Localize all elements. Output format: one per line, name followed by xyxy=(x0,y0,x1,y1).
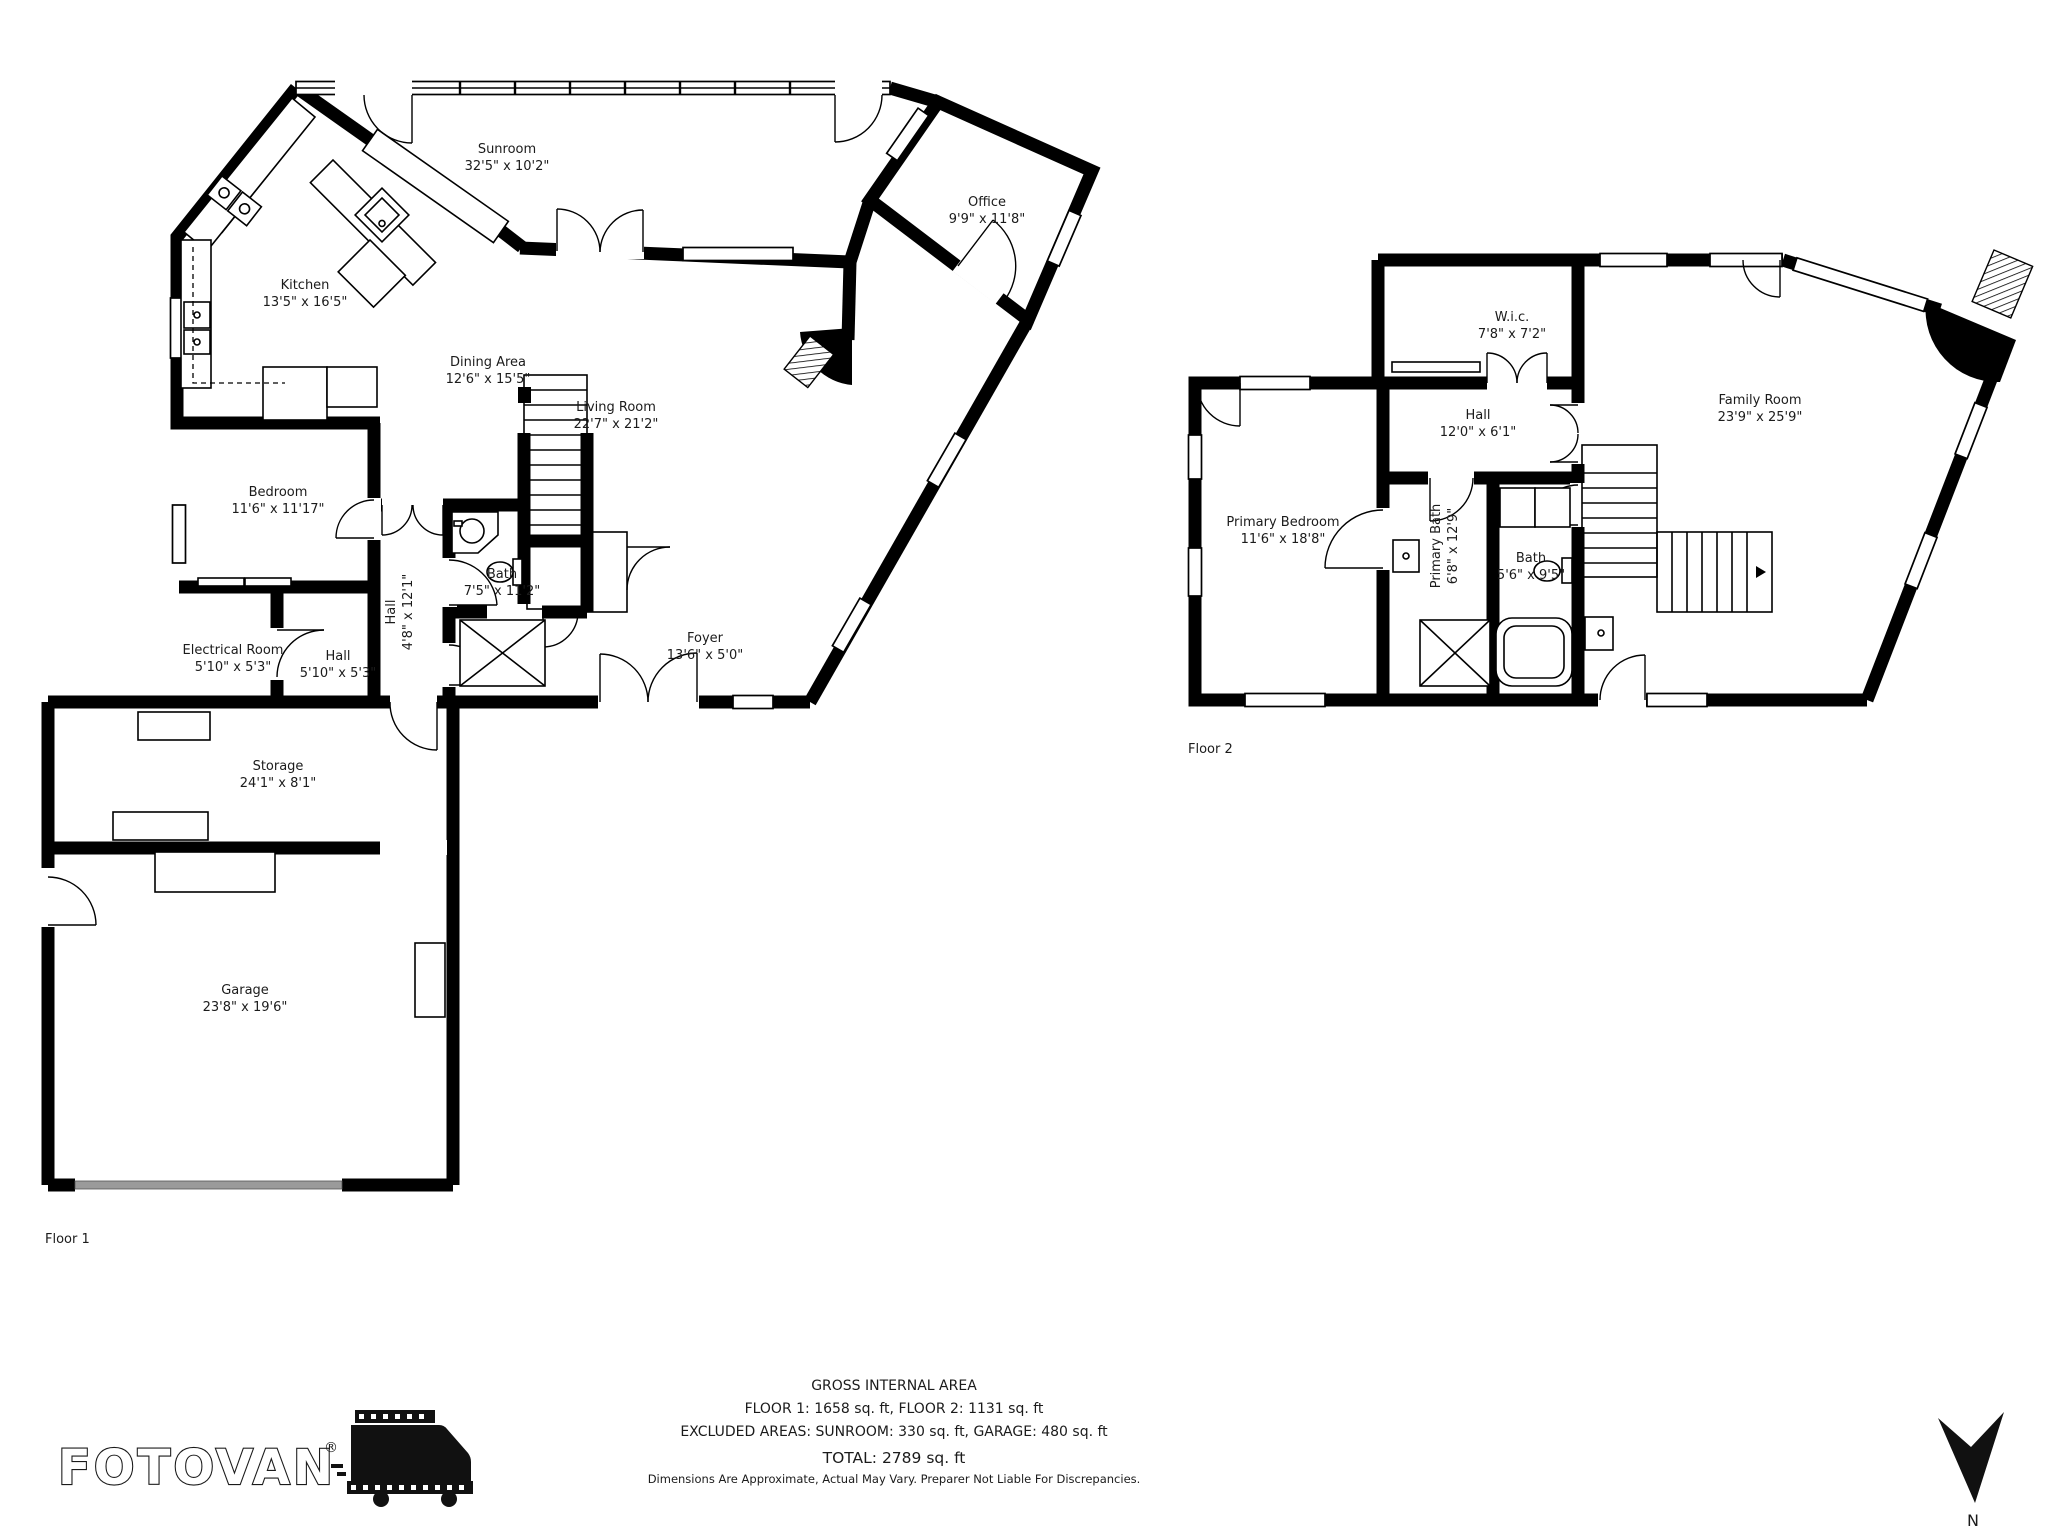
kitchen-sink-icon xyxy=(184,302,210,354)
disclaimer-text: Dimensions Are Approximate, Actual May V… xyxy=(648,1472,1141,1486)
svg-text:24'1" x 8'1": 24'1" x 8'1" xyxy=(240,776,316,791)
svg-text:Hall: Hall xyxy=(326,649,351,664)
floor1-room-labels: Sunroom 32'5" x 10'2" Office 9'9" x 11'8… xyxy=(183,142,1026,1015)
svg-text:Foyer: Foyer xyxy=(687,631,724,646)
fotovan-logo-text: FOTOVAN xyxy=(58,1440,336,1496)
north-label: N xyxy=(1967,1511,1979,1530)
svg-text:9'9" x 11'8": 9'9" x 11'8" xyxy=(949,212,1025,227)
hall-sink-icon xyxy=(1585,617,1613,650)
room-label-electrical: Electrical Room 5'10" x 5'3" xyxy=(183,643,284,675)
room-label-primary-bath: Primary Bath 6'8" x 12'9" xyxy=(1429,504,1461,589)
excluded-area-line: EXCLUDED AREAS: SUNROOM: 330 sq. ft, GAR… xyxy=(680,1424,1108,1440)
floor2-room-labels: W.i.c. 7'8" x 7'2" Hall 12'0" x 6'1" Fam… xyxy=(1226,310,1802,588)
floorplan-page: Sunroom 32'5" x 10'2" Office 9'9" x 11'8… xyxy=(0,0,2048,1536)
floorplan-canvas: Sunroom 32'5" x 10'2" Office 9'9" x 11'8… xyxy=(0,0,2048,1536)
room-label-dining: Dining Area 12'6" x 15'5" xyxy=(446,355,531,387)
compass: N xyxy=(1938,1412,2004,1530)
room-label-foyer: Foyer 13'6" x 5'0" xyxy=(667,631,743,663)
svg-text:11'6" x 18'8": 11'6" x 18'8" xyxy=(1241,532,1326,547)
svg-text:7'8" x 7'2": 7'8" x 7'2" xyxy=(1478,327,1546,342)
svg-text:Hall: Hall xyxy=(384,600,399,625)
svg-text:W.i.c.: W.i.c. xyxy=(1495,310,1530,325)
room-label-family: Family Room 23'9" x 25'9" xyxy=(1718,393,1803,425)
svg-text:5'10" x 5'3": 5'10" x 5'3" xyxy=(300,666,376,681)
svg-text:Storage: Storage xyxy=(253,759,304,774)
svg-text:Bath: Bath xyxy=(1516,551,1546,566)
room-label-storage: Storage 24'1" x 8'1" xyxy=(240,759,316,791)
registered-mark: ® xyxy=(324,1440,338,1456)
room-label-office: Office 9'9" x 11'8" xyxy=(949,195,1025,227)
bedroom-closet xyxy=(198,578,291,586)
room-label-sunroom: Sunroom 32'5" x 10'2" xyxy=(465,142,550,174)
fotovan-logo: FOTOVAN ® xyxy=(58,1410,473,1507)
svg-text:Garage: Garage xyxy=(221,983,269,998)
footer-summary: GROSS INTERNAL AREA FLOOR 1: 1658 sq. ft… xyxy=(648,1378,1141,1486)
svg-text:Office: Office xyxy=(968,195,1006,210)
svg-text:Bath: Bath xyxy=(487,567,517,582)
svg-text:Primary Bath: Primary Bath xyxy=(1429,504,1444,589)
total-area-line: TOTAL: 2789 sq. ft xyxy=(822,1449,966,1467)
svg-text:Sunroom: Sunroom xyxy=(478,142,536,157)
svg-text:Electrical Room: Electrical Room xyxy=(183,643,284,658)
svg-text:Living Room: Living Room xyxy=(576,400,656,415)
svg-text:Hall: Hall xyxy=(1466,408,1491,423)
svg-text:Dining Area: Dining Area xyxy=(450,355,526,370)
svg-text:12'0" x 6'1": 12'0" x 6'1" xyxy=(1440,425,1516,440)
svg-text:32'5" x 10'2": 32'5" x 10'2" xyxy=(465,159,550,174)
svg-text:Primary Bedroom: Primary Bedroom xyxy=(1226,515,1339,530)
room-label-kitchen: Kitchen 13'5" x 16'5" xyxy=(263,278,348,310)
svg-text:22'7" x 21'2": 22'7" x 21'2" xyxy=(574,417,659,432)
svg-text:7'5" x 11'2": 7'5" x 11'2" xyxy=(464,584,540,599)
pbath-sink-icon xyxy=(1393,540,1419,572)
bathtub-icon xyxy=(1496,618,1572,686)
room-label-bedroom: Bedroom 11'6" x 11'17" xyxy=(232,485,325,517)
svg-text:13'5" x 16'5": 13'5" x 16'5" xyxy=(263,295,348,310)
gross-area-title: GROSS INTERNAL AREA xyxy=(811,1378,977,1394)
garage-door xyxy=(75,1181,342,1189)
dryer-icon xyxy=(1535,488,1570,527)
floor1-plan: Sunroom 32'5" x 10'2" Office 9'9" x 11'8… xyxy=(41,78,1092,1247)
svg-text:6'8" x 12'9": 6'8" x 12'9" xyxy=(1446,508,1461,584)
room-label-hall-main: Hall 4'8" x 12'1" xyxy=(384,574,416,650)
svg-text:5'6" x 9'5": 5'6" x 9'5" xyxy=(1497,568,1565,583)
floor1-label: Floor 1 xyxy=(45,1232,90,1247)
svg-text:23'8" x 19'6": 23'8" x 19'6" xyxy=(203,1000,288,1015)
washer-icon xyxy=(1500,488,1535,527)
room-label-hall-small: Hall 5'10" x 5'3" xyxy=(300,649,376,681)
svg-text:13'6" x 5'0": 13'6" x 5'0" xyxy=(667,648,743,663)
floor2-label: Floor 2 xyxy=(1188,742,1233,757)
stair-direction-arrow xyxy=(1756,566,1766,578)
floors-area-line: FLOOR 1: 1658 sq. ft, FLOOR 2: 1131 sq. … xyxy=(745,1401,1044,1417)
svg-text:Bedroom: Bedroom xyxy=(249,485,308,500)
room-label-garage: Garage 23'8" x 19'6" xyxy=(203,983,288,1015)
room-label-hall2: Hall 12'0" x 6'1" xyxy=(1440,408,1516,440)
svg-text:12'6" x 15'5": 12'6" x 15'5" xyxy=(446,372,531,387)
svg-text:Kitchen: Kitchen xyxy=(281,278,330,293)
svg-text:Family Room: Family Room xyxy=(1719,393,1802,408)
floor2-plan: W.i.c. 7'8" x 7'2" Hall 12'0" x 6'1" Fam… xyxy=(1188,250,2033,757)
fireplace-chimney-floor2 xyxy=(1926,250,2033,382)
north-arrow-icon xyxy=(1938,1412,2004,1503)
svg-text:4'8" x 12'1": 4'8" x 12'1" xyxy=(401,574,416,650)
wic-shelf xyxy=(1392,362,1480,372)
svg-text:5'10" x 5'3": 5'10" x 5'3" xyxy=(195,660,271,675)
fotovan-van-icon xyxy=(331,1410,473,1507)
room-label-wic: W.i.c. 7'8" x 7'2" xyxy=(1478,310,1546,342)
fireplace-chimney-floor1 xyxy=(784,328,852,388)
storage-garage-fixtures xyxy=(113,712,445,1017)
staircase-floor2 xyxy=(1582,445,1772,612)
svg-text:11'6" x 11'17": 11'6" x 11'17" xyxy=(232,502,325,517)
room-label-primary-bedroom: Primary Bedroom 11'6" x 18'8" xyxy=(1226,515,1339,547)
svg-text:23'9" x 25'9": 23'9" x 25'9" xyxy=(1718,410,1803,425)
